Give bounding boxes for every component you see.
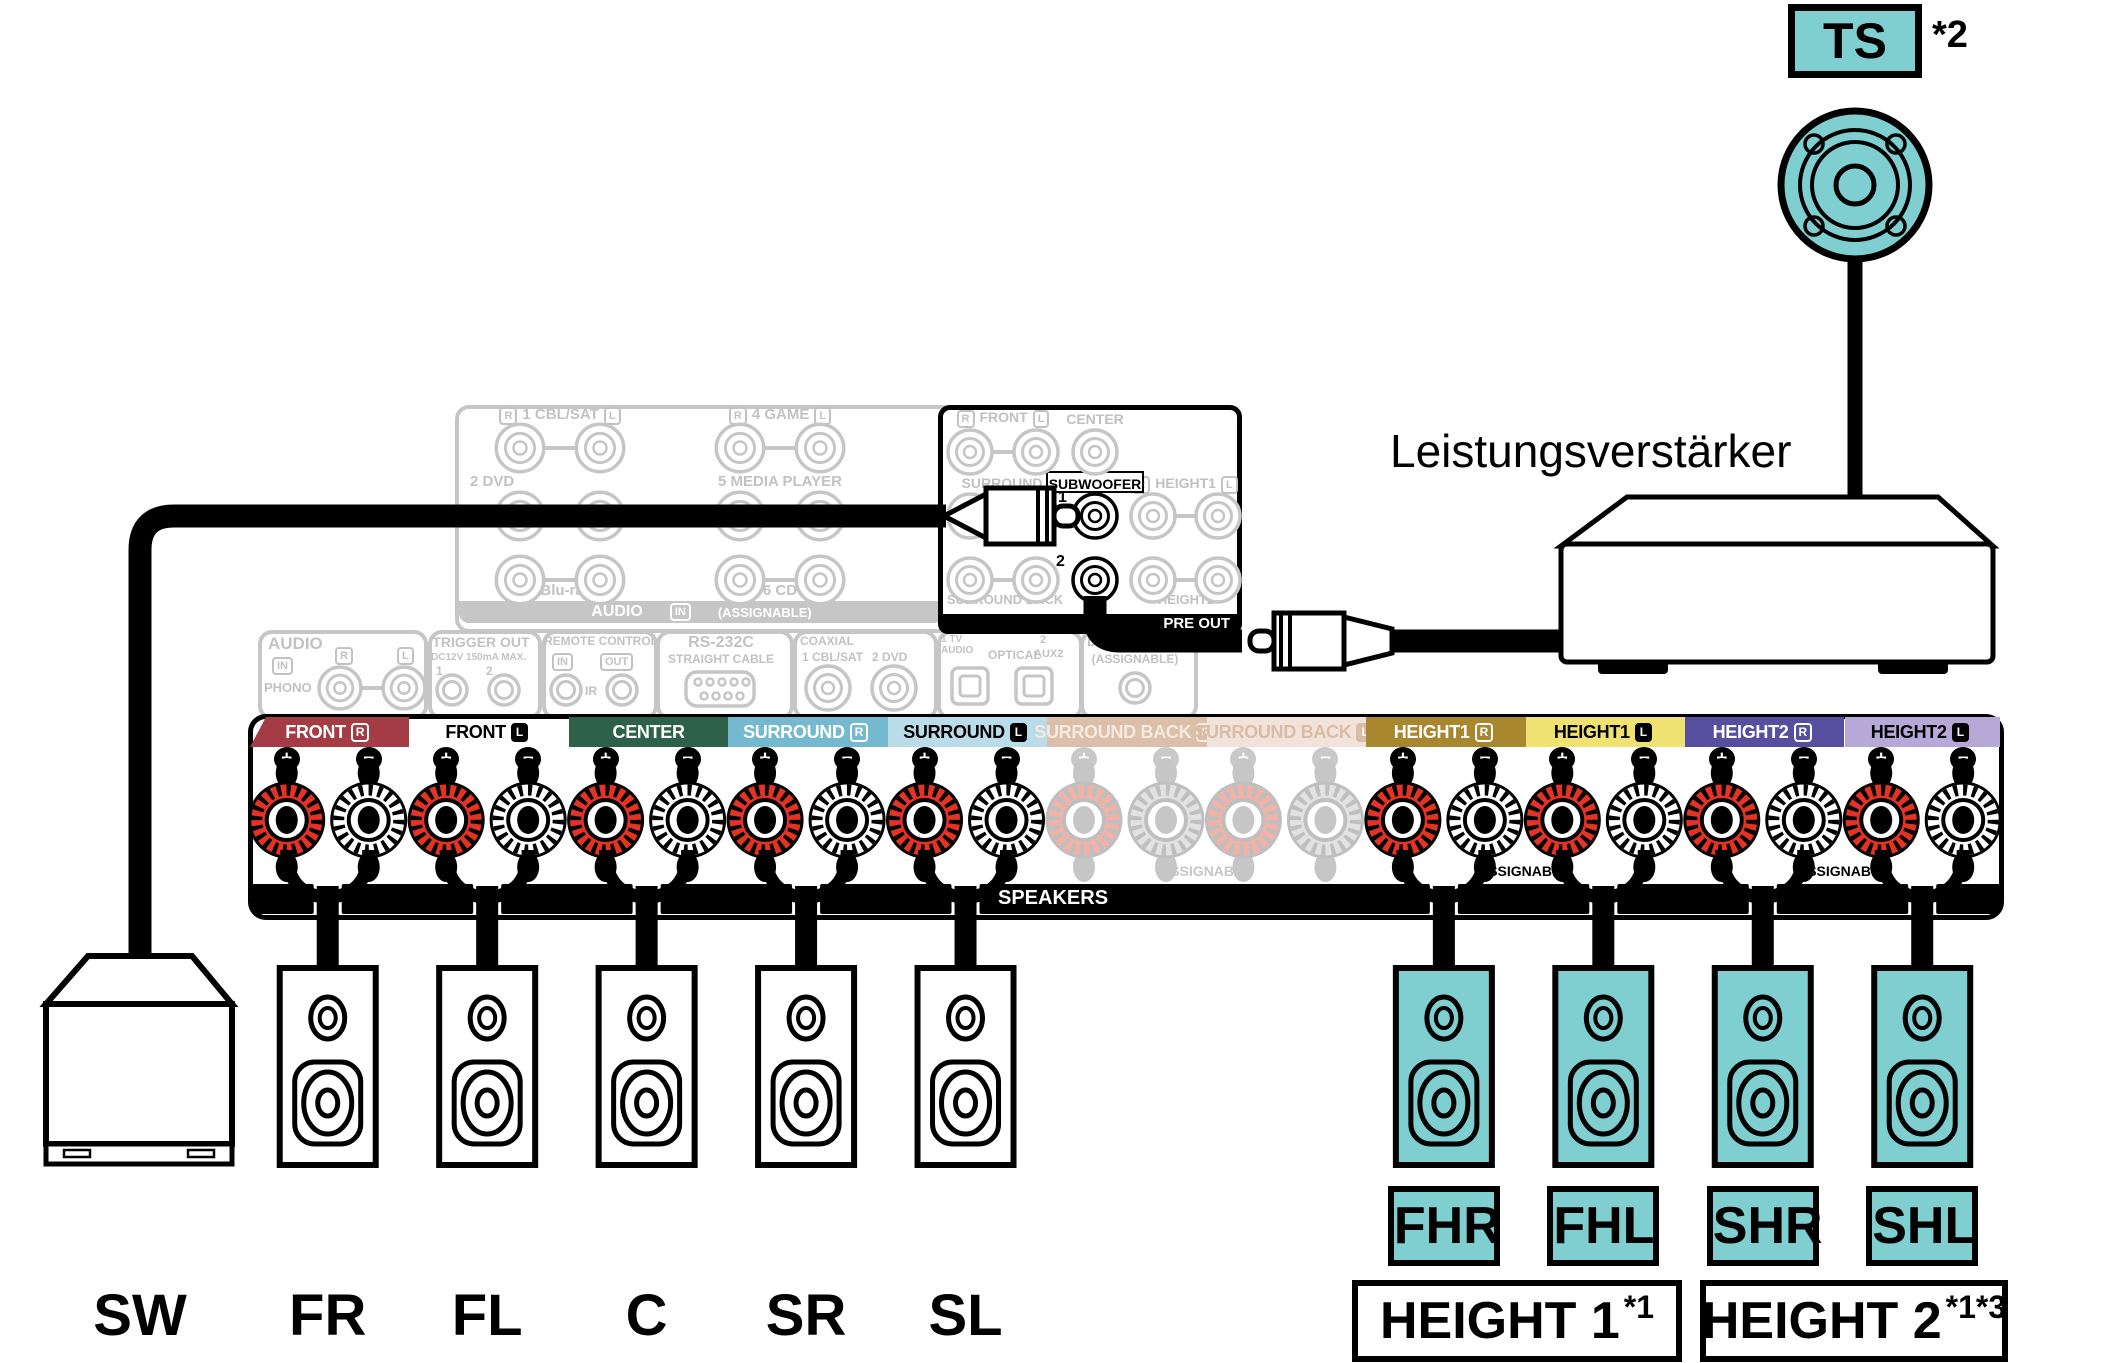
terminal-channel-label-center: CENTER	[569, 717, 728, 747]
height1-group-footnote: *1	[1624, 1289, 1654, 1326]
preout-height2-label: HEIGHT2	[1150, 592, 1222, 607]
r-badge: R	[729, 407, 747, 425]
speaker-code-sl: SL	[896, 1282, 1036, 1349]
l-badge: L	[1033, 410, 1050, 428]
preout-center-label: CENTER	[1055, 411, 1135, 427]
preout-front-label: RFRONTL	[943, 409, 1063, 428]
height1-group-box: HEIGHT 1*1	[1352, 1280, 1682, 1362]
grid-audio-in-band: AUDIO IN (ASSIGNABLE)	[459, 601, 944, 623]
speaker-shr-icon	[1715, 968, 1811, 1165]
preout-surround-label: SURROUND	[952, 475, 1052, 491]
coaxial-1-label: 1 CBL/SAT	[802, 650, 863, 664]
height2-group-box: HEIGHT 2*1*3	[1700, 1280, 2008, 1362]
channel-label-text: SURROUND	[743, 722, 845, 743]
speaker-sl-icon	[918, 968, 1014, 1165]
channel-label-text: SURROUND BACK	[1034, 722, 1191, 743]
channel-label-text: SURROUND BACK	[1194, 722, 1351, 743]
r-badge: R	[957, 410, 975, 428]
plus-terminal-icon: +	[593, 747, 619, 771]
ts-label-box: TS	[1788, 4, 1922, 78]
channel-label-text: HEIGHT1	[1554, 722, 1630, 743]
plus-terminal-icon: +	[912, 747, 938, 771]
speaker-code-box-shr: SHR	[1707, 1186, 1819, 1266]
speaker-shl-icon	[1874, 968, 1970, 1165]
rca-plug-amp-icon	[1274, 613, 1344, 669]
channel-label-text: FRONT	[445, 722, 506, 743]
speaker-c-icon	[599, 968, 695, 1165]
trigger-1: 1	[436, 664, 443, 678]
channel-label-text: CENTER	[613, 722, 685, 743]
terminal-channel-label-height1-l: HEIGHT1L	[1526, 717, 1685, 747]
speaker-code-sw: SW	[70, 1282, 210, 1349]
minus-terminal-icon: −	[994, 747, 1020, 771]
speaker-fl-icon	[439, 968, 535, 1165]
coaxial-2-label: 2 DVD	[872, 650, 907, 664]
remote-out-badge: OUT	[600, 652, 633, 671]
height2-group-footnote: *1*3	[1946, 1289, 2007, 1326]
minus-terminal-icon: −	[675, 747, 701, 771]
grid-row2-right-label: 5 MEDIA PLAYER	[690, 473, 870, 490]
assignable-surround-back: ASSIGNABLE	[1160, 863, 1252, 879]
speaker-fr-icon	[280, 968, 376, 1165]
plus-terminal-icon: +	[752, 747, 778, 771]
channel-label-text: HEIGHT2	[1871, 722, 1947, 743]
speaker-code-box-shl: SHL	[1866, 1186, 1978, 1266]
speaker-code-box-fhl: FHL	[1547, 1186, 1659, 1266]
speaker-code-box-fhr: FHR	[1388, 1186, 1500, 1266]
l-badge: L	[1221, 476, 1238, 494]
amplifier-label: Leistungsverstärker	[1390, 424, 1791, 478]
plus-terminal-icon: +	[1390, 747, 1416, 771]
grid-row1-left-label: R1 CBL/SATL	[470, 406, 650, 425]
speaker-code-fr: FR	[258, 1282, 398, 1349]
minus-terminal-icon: −	[515, 747, 541, 771]
terminal-channel-label-surround-r: SURROUNDR	[728, 717, 887, 747]
digital-audio-title: DIGITAL AUDIO	[1086, 634, 1184, 649]
l-badge: L	[1010, 723, 1027, 742]
pre-out-band: PRE OUT	[938, 614, 1242, 634]
channel-label-text: FRONT	[285, 722, 346, 743]
terminal-channel-label-surround-l: SURROUNDL	[888, 717, 1047, 747]
terminal-channel-label-front-l: FRONTL	[409, 717, 568, 747]
minus-terminal-icon: −	[834, 747, 860, 771]
audio-r-badge: R	[330, 646, 358, 665]
channel-label-text: HEIGHT1	[1394, 722, 1470, 743]
speaker-fhl-icon	[1555, 968, 1651, 1165]
channel-label-text: SURROUND	[903, 722, 1005, 743]
top-speaker-icon	[1781, 111, 1929, 259]
speakers-band-label: SPEAKERS	[998, 887, 1108, 910]
ts-footnote: *2	[1932, 14, 1968, 57]
plus-terminal-icon: +	[1709, 747, 1735, 771]
optical-aux2: AUX2	[1034, 648, 1063, 660]
speaker-code-sr: SR	[736, 1282, 876, 1349]
plus-terminal-icon: +	[433, 747, 459, 771]
remote-in-badge: IN	[552, 652, 573, 671]
terminal-channel-label-surround-back-r: SURROUND BACKR	[1047, 717, 1206, 747]
in-badge: IN	[670, 603, 691, 621]
terminal-channel-label-surround-back-l: SURROUND BACKL	[1207, 717, 1366, 747]
audio-l-badge: L	[392, 646, 419, 665]
grid-row1-right-label: R4 GAMEL	[690, 406, 870, 425]
l-badge: L	[604, 407, 621, 425]
phono-label: PHONO	[264, 680, 312, 695]
subwoofer-speaker-icon	[46, 956, 232, 1164]
l-badge: L	[1635, 723, 1652, 742]
optical-2: 2	[1040, 634, 1046, 646]
preout-surround-back-label: SURROUND BACK	[945, 592, 1065, 607]
r-badge: R	[850, 723, 868, 742]
grid-row3-right-label: 6 CD	[690, 582, 870, 599]
plus-terminal-icon: +	[274, 747, 300, 771]
assignable-height2: ASSIGNABLE	[1797, 863, 1889, 879]
r-badge: R	[351, 723, 369, 742]
speaker-sr-icon	[758, 968, 854, 1165]
coaxial-title: COAXIAL	[800, 634, 854, 648]
audio-in-badge: IN	[272, 656, 293, 675]
channel-label-text: HEIGHT2	[1713, 722, 1789, 743]
terminal-channel-label-height1-r: HEIGHT1R	[1366, 717, 1525, 747]
trigger-2: 2	[486, 664, 493, 678]
l-badge: L	[1952, 723, 1969, 742]
l-badge: L	[511, 723, 528, 742]
trigger-title: TRIGGER OUT	[432, 634, 530, 650]
grid-row3-left-label: 3 Blu-ray	[470, 582, 650, 599]
minus-terminal-icon: −	[1791, 747, 1817, 771]
rs232c-title: RS-232C	[658, 634, 784, 652]
r-badge: R	[1794, 723, 1812, 742]
speaker-fhr-icon	[1396, 968, 1492, 1165]
subwoofer-2-number: 2	[1056, 553, 1065, 571]
minus-terminal-icon: −	[356, 747, 382, 771]
terminal-channel-label-height2-l: HEIGHT2L	[1845, 717, 2001, 747]
height1-group-label: HEIGHT 1	[1380, 1291, 1620, 1351]
assignable-height1: ASSIGNABLE	[1478, 863, 1570, 879]
terminal-channel-label-front-r: FRONTR	[250, 717, 409, 747]
plus-terminal-icon: +	[1071, 747, 1097, 771]
r-badge: R	[1475, 723, 1493, 742]
minus-terminal-icon: −	[1153, 747, 1179, 771]
remote-title: REMOTE CONTROL	[544, 634, 648, 648]
speaker-code-c: C	[577, 1282, 717, 1349]
digital-audio-assignable: (ASSIGNABLE)	[1086, 652, 1184, 666]
speaker-code-fl: FL	[417, 1282, 557, 1349]
connection-diagram: R1 CBL/SATL R4 GAMEL 2 DVD 5 MEDIA PLAYE…	[0, 0, 2121, 1363]
optical-1-tv-audio: 1 TV AUDIO	[941, 634, 985, 656]
optical-label: OPTICAL	[988, 648, 1041, 662]
r-badge: R	[499, 407, 517, 425]
terminal-channel-label-height2-r: HEIGHT2R	[1685, 717, 1844, 747]
trigger-sub: DC12V 150mA MAX.	[431, 652, 526, 663]
minus-terminal-icon: −	[1472, 747, 1498, 771]
audio-block-title: AUDIO	[268, 634, 323, 654]
power-amplifier-icon	[1561, 497, 1993, 674]
remote-ir: IR	[585, 684, 597, 698]
height2-group-label: HEIGHT 2	[1702, 1291, 1942, 1351]
subwoofer-1-number: 1	[1058, 489, 1067, 507]
l-badge: L	[814, 407, 831, 425]
grid-row2-left-label: 2 DVD	[470, 473, 514, 490]
rs232c-sub: STRAIGHT CABLE	[658, 652, 784, 666]
